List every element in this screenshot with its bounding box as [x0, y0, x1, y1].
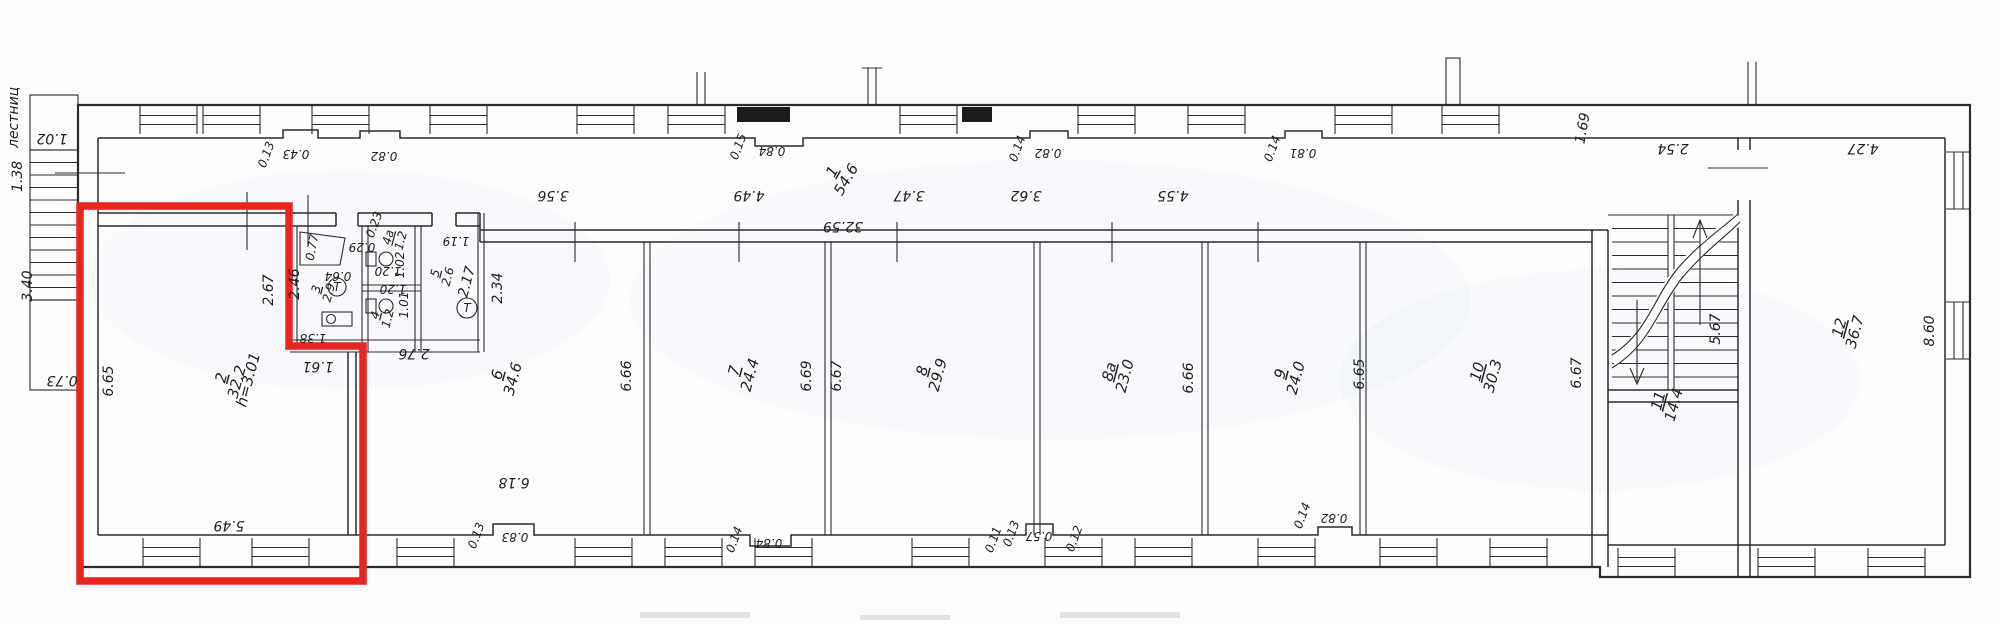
dim-5-67: 5.67 — [1708, 313, 1724, 344]
wall-fill-mark — [962, 107, 992, 122]
dim-6-67a: 6.67 — [829, 360, 845, 391]
dim-1-19: 1.19 — [443, 234, 470, 248]
dim-2-54: 2.54 — [1657, 140, 1688, 156]
top-wall-windows — [140, 106, 1499, 134]
right-wall-windows — [1946, 152, 1971, 359]
dim-2-67: 2.67 — [261, 274, 277, 305]
stairs-caption: лестниц — [6, 87, 22, 149]
svg-text:36.7: 36.7 — [1842, 313, 1868, 350]
dim-1-02b: 1.02 — [393, 252, 407, 279]
wall-fill-mark — [737, 107, 790, 122]
dim-6-69: 6.69 — [799, 360, 815, 391]
dim-0-84a: 0.84 — [759, 144, 786, 158]
dim-3-62: 3.62 — [1010, 187, 1041, 203]
dim-0-82b: 0.82 — [1035, 146, 1062, 160]
dim-0-12: 0.12 — [1063, 524, 1085, 554]
dim-0-73: 0.73 — [46, 372, 77, 388]
dim-4-55: 4.55 — [1157, 187, 1188, 203]
floor-plan-svg: лестниц 1.38 1.02 3.40 0.73 6.65 5.49 2.… — [0, 0, 2000, 627]
dim-6-66a: 6.66 — [619, 360, 635, 391]
dim-0-83: 0.83 — [502, 530, 529, 544]
scanned-floor-plan-page: лестниц 1.38 1.02 3.40 0.73 6.65 5.49 2.… — [0, 0, 2000, 627]
dim-8-60: 8.60 — [1922, 315, 1938, 346]
dim-3-56: 3.56 — [537, 187, 568, 203]
dim-6-67b: 6.67 — [1569, 357, 1585, 388]
dim-0-84b: 0.84 — [756, 536, 783, 550]
dim-6-66b: 6.66 — [1181, 362, 1197, 393]
dim-0-57: 0.57 — [1025, 529, 1052, 543]
dim-2-46: 2.46 — [287, 268, 303, 299]
dim-1-38b: 1.38 — [299, 331, 326, 345]
dim-0-43: 0.43 — [283, 147, 310, 161]
dim-3-47: 3.47 — [893, 187, 924, 203]
dim-0-14c: 0.14 — [723, 525, 745, 555]
dim-0-13a: 0.13 — [255, 140, 277, 170]
dim-5-49: 5.49 — [213, 517, 244, 533]
dim-0-29: 0.29 — [349, 240, 376, 254]
dim-32-59: 32.59 — [823, 218, 863, 234]
dim-1-69: 1.69 — [1572, 111, 1593, 145]
dim-0-15: 0.15 — [727, 132, 749, 162]
dim-2-76: 2.76 — [398, 345, 429, 361]
dim-1-61: 1.61 — [302, 358, 333, 374]
dim-6-65: 6.65 — [101, 365, 117, 396]
dim-6-18: 6.18 — [498, 474, 529, 490]
dim-0-81: 0.81 — [1290, 146, 1317, 160]
dim-6-65b: 6.65 — [1352, 358, 1368, 389]
dim-0-82a: 0.82 — [371, 149, 398, 163]
dim-4-27: 4.27 — [1847, 140, 1878, 156]
dim-0-13c: 0.13 — [1000, 519, 1022, 549]
dim-2-34: 2.34 — [490, 272, 506, 303]
dim-1-01: 1.01 — [397, 292, 411, 319]
dim-4-49: 4.49 — [733, 187, 764, 203]
dim-3-40: 3.40 — [20, 270, 36, 301]
dim-1-02: 1.02 — [36, 130, 67, 146]
dim-1-38: 1.38 — [10, 161, 26, 192]
dim-0-14d: 0.14 — [1291, 501, 1313, 531]
dim-0-82c: 0.82 — [1321, 511, 1348, 525]
